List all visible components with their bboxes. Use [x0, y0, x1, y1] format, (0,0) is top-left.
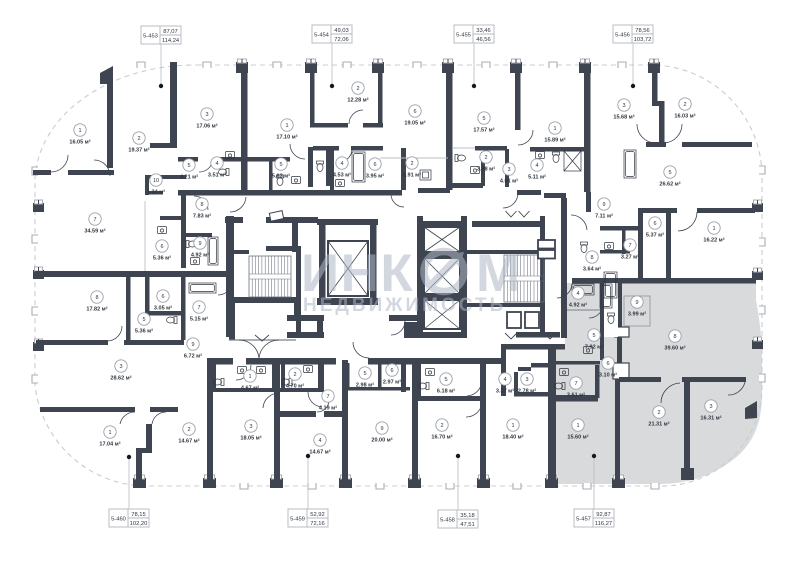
svg-text:21.31 м²: 21.31 м² [648, 421, 669, 428]
svg-text:17.57 м²: 17.57 м² [473, 127, 494, 134]
svg-text:НЕДВИЖИМОСТЬ: НЕДВИЖИМОСТЬ [303, 295, 506, 316]
svg-text:26.62 м²: 26.62 м² [659, 181, 680, 188]
svg-text:5.36 м²: 5.36 м² [153, 255, 171, 262]
svg-text:1: 1 [553, 126, 556, 132]
svg-text:7: 7 [574, 381, 577, 387]
svg-text:18.40 м²: 18.40 м² [502, 434, 523, 441]
svg-text:5: 5 [444, 377, 447, 383]
svg-text:3.10 м²: 3.10 м² [599, 372, 617, 379]
svg-text:2: 2 [410, 161, 413, 167]
svg-text:9: 9 [380, 426, 383, 432]
svg-text:78,56: 78,56 [635, 28, 650, 34]
svg-text:5-460: 5-460 [111, 517, 126, 523]
svg-text:2: 2 [484, 155, 487, 161]
svg-text:5-458: 5-458 [440, 518, 455, 524]
svg-text:6: 6 [160, 244, 163, 250]
svg-text:14.67 м²: 14.67 м² [178, 438, 199, 445]
svg-text:1: 1 [712, 226, 715, 232]
svg-text:2: 2 [683, 102, 686, 108]
svg-text:4.01 м²: 4.01 м² [500, 178, 518, 185]
svg-text:7: 7 [326, 394, 329, 400]
svg-text:3: 3 [709, 404, 712, 410]
svg-text:34.59 м²: 34.59 м² [84, 228, 105, 235]
svg-text:5-457: 5-457 [576, 517, 591, 523]
svg-text:1: 1 [108, 430, 111, 436]
svg-text:4.21 м²: 4.21 м² [180, 174, 198, 181]
svg-text:1.34 м²: 1.34 м² [147, 189, 165, 196]
svg-text:7: 7 [93, 217, 96, 223]
svg-text:4: 4 [340, 161, 343, 167]
svg-text:4: 4 [503, 377, 506, 383]
svg-text:7.11 м²: 7.11 м² [595, 213, 613, 220]
svg-text:12.28 м²: 12.28 м² [347, 97, 368, 104]
svg-text:114,24: 114,24 [162, 38, 180, 44]
svg-text:3.05 м²: 3.05 м² [154, 305, 172, 312]
svg-text:8: 8 [590, 255, 593, 261]
svg-text:3: 3 [622, 103, 625, 109]
svg-text:3.98 м²: 3.98 м² [477, 166, 495, 173]
svg-text:16.31 м²: 16.31 м² [700, 415, 721, 422]
svg-text:2.97 м²: 2.97 м² [383, 379, 401, 386]
svg-text:2.98 м²: 2.98 м² [356, 382, 374, 389]
svg-text:5: 5 [187, 163, 190, 169]
svg-text:9: 9 [198, 241, 201, 247]
svg-text:1: 1 [285, 123, 288, 129]
svg-text:5: 5 [592, 333, 595, 339]
svg-text:1: 1 [511, 423, 514, 429]
svg-text:4.19 м²: 4.19 м² [319, 405, 337, 412]
svg-text:5-454: 5-454 [314, 33, 330, 39]
svg-text:39.60 м²: 39.60 м² [664, 345, 685, 352]
svg-text:33,46: 33,46 [476, 28, 491, 34]
svg-text:52,92: 52,92 [310, 512, 325, 518]
svg-text:2.78 м²: 2.78 м² [518, 388, 536, 395]
svg-text:4.53 м²: 4.53 м² [333, 172, 351, 179]
svg-text:2: 2 [187, 427, 190, 433]
svg-text:5: 5 [142, 317, 145, 323]
svg-text:17.06 м²: 17.06 м² [196, 123, 217, 130]
svg-text:3.27 м²: 3.27 м² [621, 254, 639, 261]
svg-text:4: 4 [318, 438, 321, 444]
svg-text:87,07: 87,07 [163, 29, 178, 35]
svg-text:19.05 м²: 19.05 м² [404, 120, 425, 127]
svg-text:28.62 м²: 28.62 м² [110, 375, 131, 382]
svg-text:9: 9 [191, 342, 194, 348]
svg-text:103,72: 103,72 [634, 37, 652, 43]
svg-text:2: 2 [657, 410, 660, 416]
svg-text:17.82 м²: 17.82 м² [86, 306, 107, 313]
svg-text:72,16: 72,16 [310, 521, 325, 527]
svg-text:10: 10 [153, 178, 159, 184]
svg-text:5-453: 5-453 [143, 34, 158, 40]
svg-text:1: 1 [248, 374, 251, 380]
svg-text:20.00 м²: 20.00 м² [371, 437, 392, 444]
svg-text:16.03 м²: 16.03 м² [674, 113, 695, 120]
svg-text:116,27: 116,27 [595, 521, 612, 527]
svg-text:102,20: 102,20 [130, 521, 148, 527]
svg-text:35,18: 35,18 [460, 513, 475, 519]
svg-text:15.60 м²: 15.60 м² [567, 434, 588, 441]
svg-text:4.92 м²: 4.92 м² [191, 252, 209, 259]
svg-text:19.37 м²: 19.37 м² [128, 147, 149, 154]
svg-text:3.64 м²: 3.64 м² [583, 266, 601, 273]
svg-text:5.36 м²: 5.36 м² [135, 328, 153, 335]
svg-text:2: 2 [293, 372, 296, 378]
svg-text:6: 6 [390, 368, 393, 374]
svg-text:6: 6 [606, 361, 609, 367]
svg-text:16.22 м²: 16.22 м² [703, 237, 724, 244]
svg-text:5: 5 [363, 371, 366, 377]
svg-text:5-456: 5-456 [615, 33, 630, 39]
svg-text:4.92 м²: 4.92 м² [569, 302, 587, 309]
svg-text:8: 8 [95, 295, 98, 301]
svg-text:5: 5 [482, 116, 485, 122]
svg-text:15.68 м²: 15.68 м² [613, 114, 634, 121]
svg-text:47,51: 47,51 [460, 522, 475, 528]
svg-text:2: 2 [356, 86, 359, 92]
svg-text:6.72 м²: 6.72 м² [184, 353, 202, 360]
svg-text:3: 3 [249, 424, 252, 430]
svg-text:5: 5 [668, 170, 671, 176]
svg-text:9: 9 [602, 202, 605, 208]
svg-text:14.67 м²: 14.67 м² [309, 449, 330, 456]
svg-text:92,87: 92,87 [596, 512, 611, 518]
svg-text:3.37 м²: 3.37 м² [496, 388, 514, 395]
svg-text:16.05 м²: 16.05 м² [69, 139, 90, 146]
svg-text:5.15 м²: 5.15 м² [190, 316, 208, 323]
svg-text:2: 2 [137, 136, 140, 142]
svg-text:8: 8 [200, 202, 203, 208]
svg-text:15.89 м²: 15.89 м² [544, 137, 565, 144]
svg-text:5.11 м²: 5.11 м² [528, 174, 546, 181]
svg-text:6: 6 [653, 221, 656, 227]
svg-text:16.70 м²: 16.70 м² [431, 434, 452, 441]
svg-text:1: 1 [576, 423, 579, 429]
svg-text:5-459: 5-459 [290, 517, 305, 523]
svg-text:5.37 м²: 5.37 м² [646, 232, 664, 239]
svg-text:3: 3 [507, 167, 510, 173]
svg-text:5.63 м²: 5.63 м² [272, 173, 290, 180]
svg-text:3.61 м²: 3.61 м² [567, 392, 585, 399]
svg-text:6: 6 [413, 109, 416, 115]
svg-text:7: 7 [197, 305, 200, 311]
svg-text:6: 6 [161, 294, 164, 300]
svg-text:2.91 м²: 2.91 м² [403, 172, 421, 179]
svg-text:8: 8 [673, 334, 676, 340]
svg-text:9: 9 [635, 300, 638, 306]
svg-text:7.83 м²: 7.83 м² [193, 213, 211, 220]
svg-text:4: 4 [576, 291, 579, 297]
svg-text:3.51 м²: 3.51 м² [208, 172, 226, 179]
svg-text:49,03: 49,03 [334, 28, 349, 34]
svg-text:17.10 м²: 17.10 м² [276, 134, 297, 141]
svg-text:3: 3 [525, 377, 528, 383]
svg-text:7.92 м²: 7.92 м² [585, 344, 603, 351]
svg-text:4: 4 [535, 163, 538, 169]
svg-text:3.95 м²: 3.95 м² [366, 173, 384, 180]
svg-text:3.99 м²: 3.99 м² [628, 311, 646, 318]
svg-text:18.05 м²: 18.05 м² [240, 435, 261, 442]
svg-text:4.67 м²: 4.67 м² [241, 385, 259, 392]
svg-text:72,06: 72,06 [334, 37, 349, 43]
svg-text:78,15: 78,15 [131, 512, 146, 518]
svg-text:4.70 м²: 4.70 м² [286, 383, 304, 390]
svg-text:3: 3 [119, 364, 122, 370]
svg-text:1: 1 [78, 128, 81, 134]
svg-text:17.04 м²: 17.04 м² [99, 441, 120, 448]
svg-text:5: 5 [279, 162, 282, 168]
svg-text:7: 7 [628, 243, 631, 249]
svg-text:4: 4 [215, 161, 218, 167]
svg-text:3: 3 [205, 112, 208, 118]
svg-text:6: 6 [373, 162, 376, 168]
svg-text:6.18 м²: 6.18 м² [437, 388, 455, 395]
svg-text:2: 2 [440, 423, 443, 429]
svg-text:46,56: 46,56 [476, 37, 491, 43]
svg-text:5-455: 5-455 [456, 33, 471, 39]
